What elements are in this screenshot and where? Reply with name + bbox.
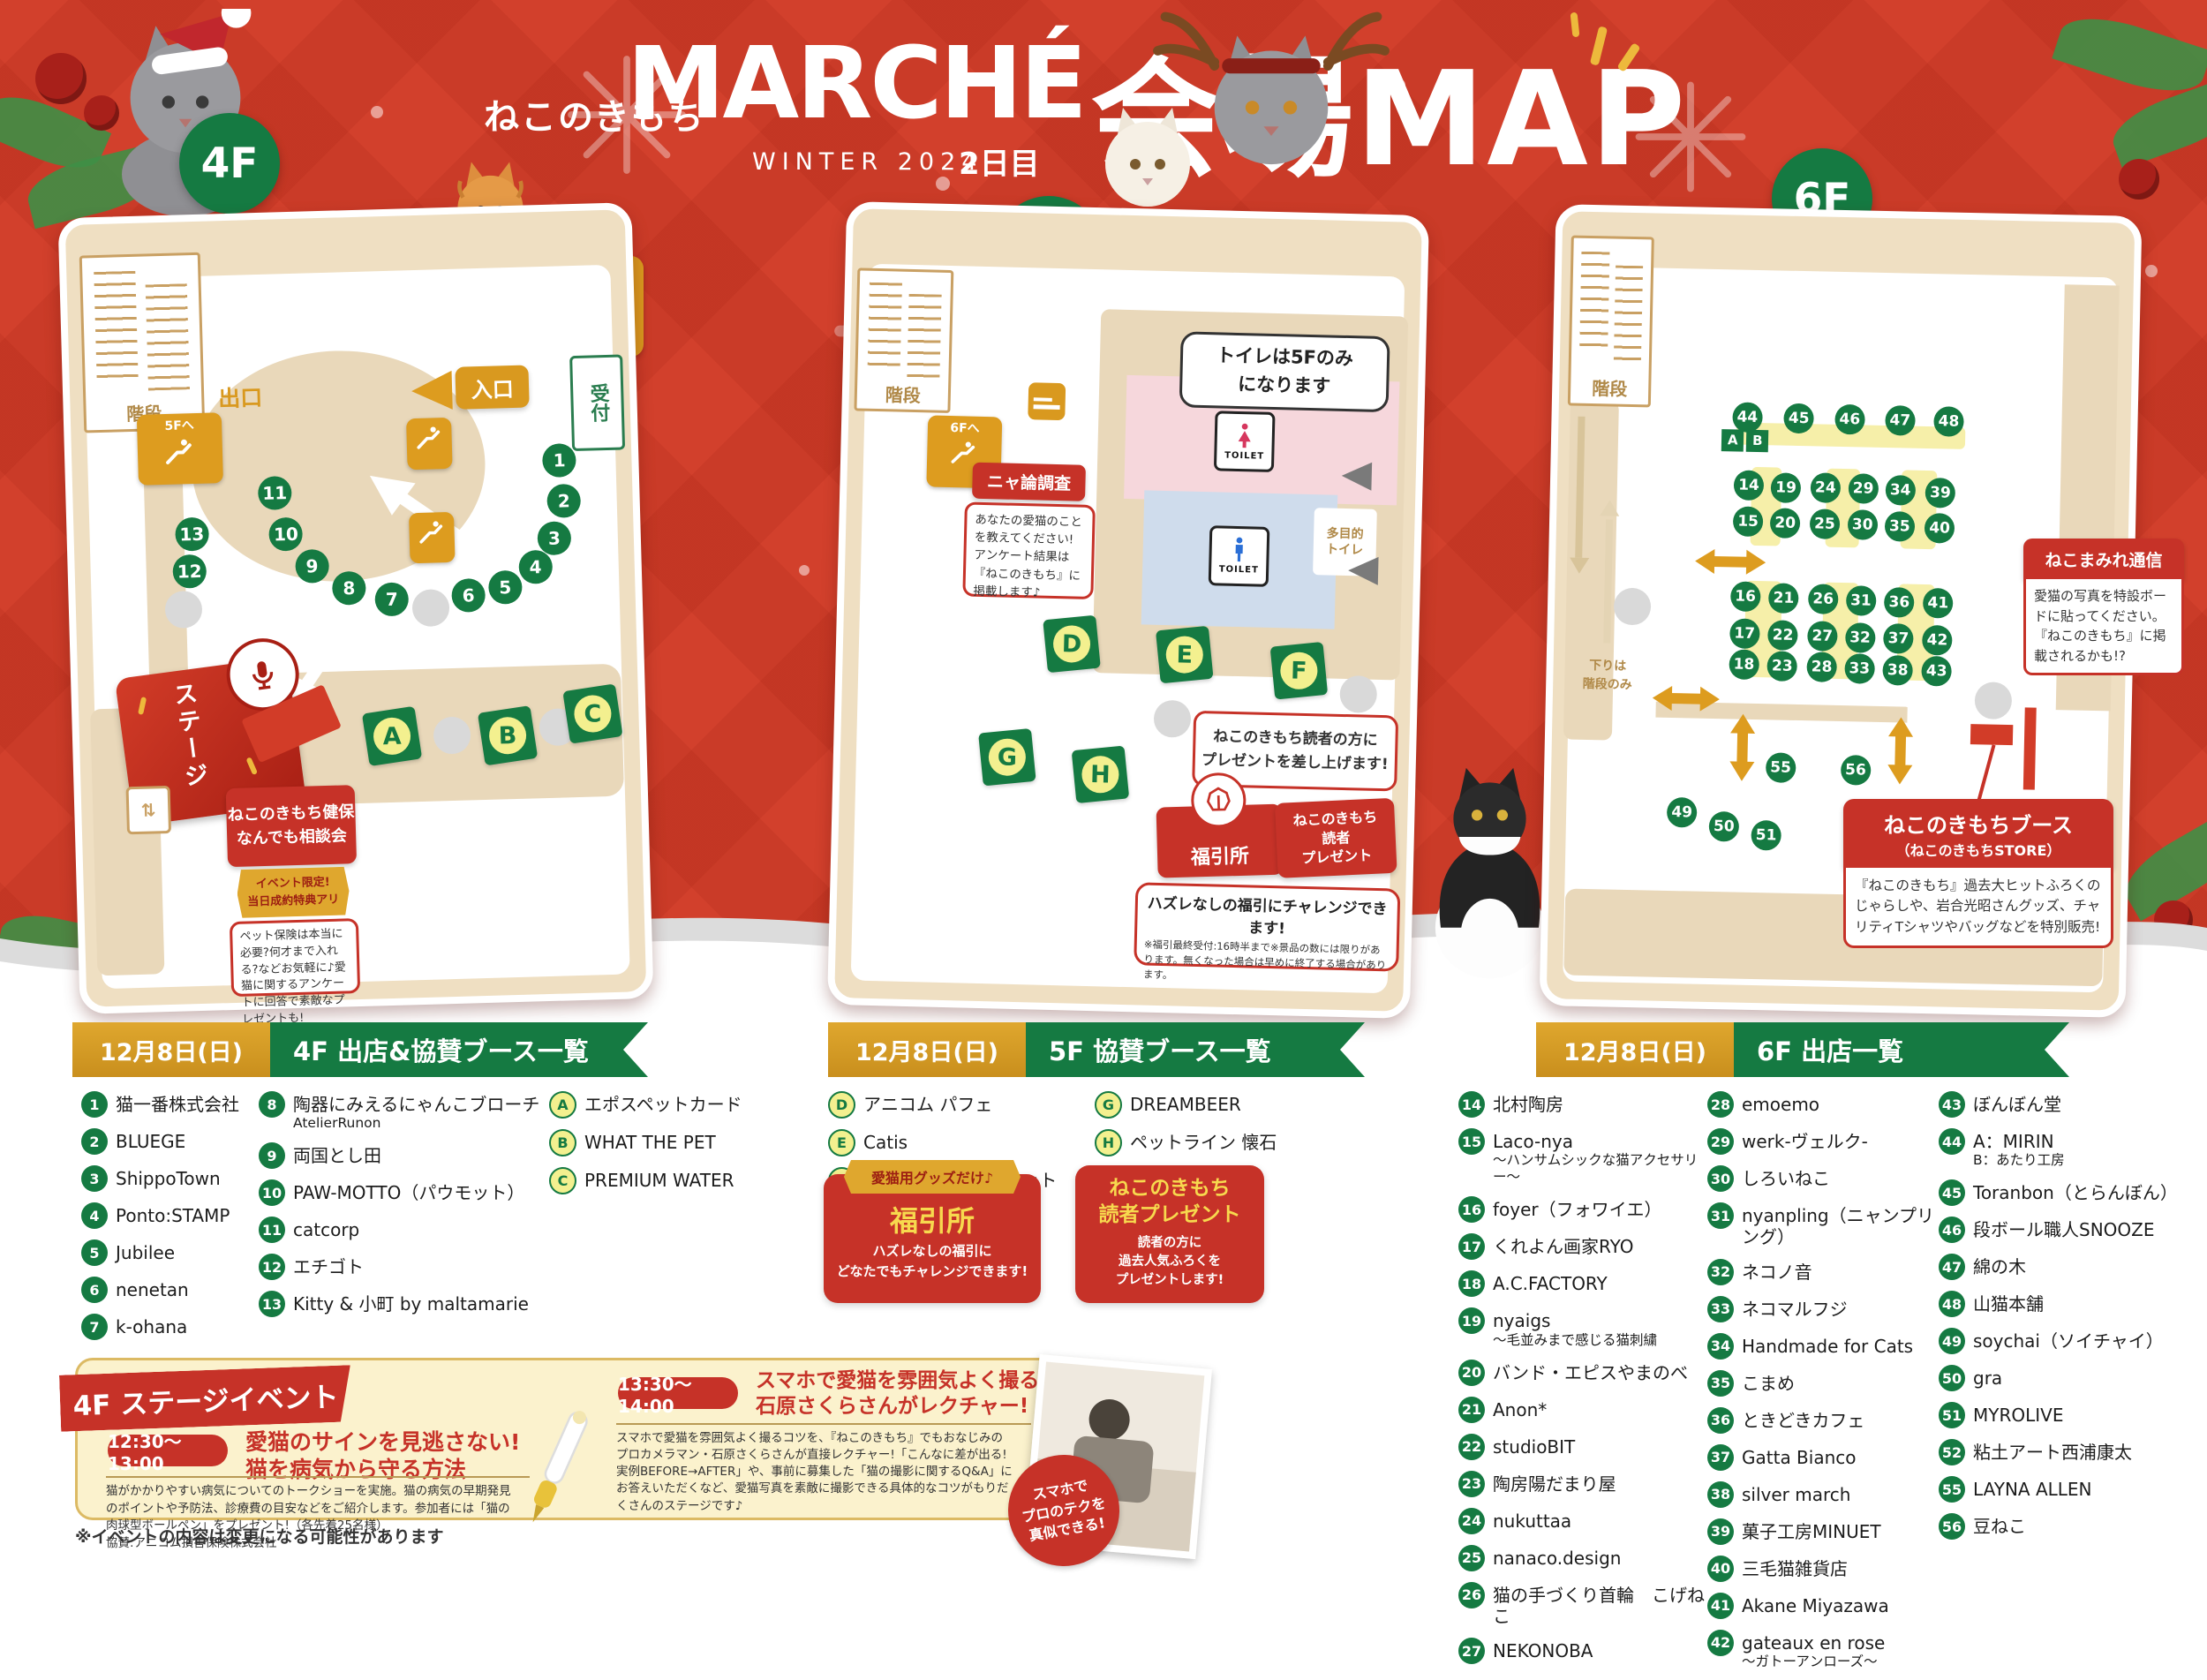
list-item: 38silver march bbox=[1707, 1480, 1950, 1508]
ornament-ball bbox=[2119, 159, 2159, 200]
list-item: 31nyanpling（ニャンプリング） bbox=[1707, 1202, 1950, 1248]
map-4f: 階段 5Fへ 出口 入口 受付 12345678910111213 ABC ステ… bbox=[58, 202, 654, 1014]
f5-list-title: 5F 協賛ブース一覧 bbox=[1026, 1022, 1365, 1077]
list-item: 50gra bbox=[1939, 1364, 2203, 1391]
sparkle-icon bbox=[245, 757, 258, 775]
list-item: 18A.C.FACTORY bbox=[1458, 1269, 1710, 1297]
booth-marker: 19 bbox=[1771, 472, 1802, 503]
list-item: Hペットライン 懐石 bbox=[1095, 1128, 1333, 1156]
list-item: 3ShippoTown bbox=[81, 1164, 258, 1192]
list-item: 39菓子工房MINUET bbox=[1707, 1518, 1950, 1545]
event-title: MARCHÉ bbox=[627, 26, 1085, 141]
booth-marker: 55 bbox=[1766, 753, 1796, 784]
fukubiki-note-body: ※福引最終受付:16時半まで※景品の数には限りがあります。無くなった場合は早めに… bbox=[1143, 938, 1390, 988]
fukubiki-promo-box: 愛猫用グッズだけ♪ 福引所 ハズレなしの福引に どなたでもチャレンジできます! bbox=[824, 1174, 1041, 1303]
consult-callout-badge: イベント限定! 当日成約特典アリ bbox=[237, 867, 350, 918]
booth-marker: 18 bbox=[1729, 650, 1759, 681]
divider bbox=[616, 1423, 1031, 1425]
list-item: 40三毛猫雑貨店 bbox=[1707, 1555, 1950, 1582]
store-callout-body: 『ねこのきもち』過去大ヒットふろくのじゃらしや、岩合光昭さんグッズ、チャリティT… bbox=[1843, 868, 2113, 948]
nekonokimochi-store-booth bbox=[1970, 724, 2013, 745]
booth-marker: 38 bbox=[1882, 655, 1913, 686]
bokeh-dot bbox=[371, 106, 383, 118]
booth-marker: 46 bbox=[1834, 404, 1865, 435]
f5-list-date: 12月8日(日) bbox=[828, 1022, 1026, 1077]
list-item: 35こまめ bbox=[1707, 1369, 1950, 1397]
divider bbox=[106, 1476, 530, 1478]
booth-marker: 48 bbox=[1933, 406, 1964, 437]
consult-callout-title: ねこのきもち健保 なんでも相談会 bbox=[226, 785, 357, 867]
booth-marker: 15 bbox=[1733, 506, 1764, 537]
f6-list-col3: 43ぼんぼん堂44A：MIRINB：あたり工房45Toranbon（とらんぼん）… bbox=[1939, 1090, 2203, 1549]
list-item: Aエポスペットカード bbox=[549, 1090, 814, 1119]
f4-list-date: 12月8日(日) bbox=[72, 1022, 270, 1077]
list-item: CPREMIUM WATER bbox=[549, 1166, 814, 1194]
event1-time: 12:30～13:00 bbox=[108, 1435, 228, 1466]
list-item: 47綿の木 bbox=[1939, 1253, 2203, 1280]
list-item: 37Gatta Bianco bbox=[1707, 1443, 1950, 1471]
f5-list-col2: GDREAMBEERHペットライン 懐石 bbox=[1095, 1090, 1333, 1166]
event-season: WINTER 2024 bbox=[752, 148, 983, 176]
store-callout: ねこのきもちブース （ねこのきもちSTORE） 『ねこのきもち』過去大ヒットふろ… bbox=[1843, 799, 2113, 948]
f4-list-col3: AエポスペットカードBWHAT THE PETCPREMIUM WATER bbox=[549, 1090, 814, 1204]
nekomamire-callout: ねこまみれ通信 愛猫の写真を特設ボードに貼ってください。『ねこのきもち』に掲載さ… bbox=[2023, 539, 2184, 675]
booth-marker: 16 bbox=[1730, 581, 1761, 612]
bokeh-dot bbox=[936, 177, 950, 191]
stage-event-note: ※イベントの内容は変更になる可能性があります bbox=[75, 1524, 443, 1548]
booth-marker: 24 bbox=[1810, 472, 1841, 503]
list-item: 46段ボール職人SNOOZE bbox=[1939, 1216, 2203, 1243]
nekomamire-body: 愛猫の写真を特設ボードに貼ってください。『ねこのきもち』に掲載されるかも!? bbox=[2023, 579, 2184, 675]
sponsor-booth-marker: A bbox=[362, 706, 422, 766]
booth-marker: 31 bbox=[1846, 586, 1877, 617]
list-item: 49soychai（ソイチャイ） bbox=[1939, 1327, 2203, 1354]
f6-list-col1: 14北村陶房15Laco-nya～ハンサムシックな猫アクセサリー～16foyer… bbox=[1458, 1090, 1710, 1674]
list-item: 20バンド・エピスやまのべ bbox=[1458, 1359, 1710, 1386]
list-item: 13Kitty & 小町 by maltamarie bbox=[259, 1290, 559, 1317]
booth-marker: 49 bbox=[1667, 797, 1698, 828]
booth-marker: 27 bbox=[1807, 622, 1838, 652]
list-item: 9両国とし田 bbox=[259, 1141, 559, 1169]
list-item: 24nukuttaa bbox=[1458, 1507, 1710, 1534]
booth-marker: 20 bbox=[1770, 508, 1801, 539]
sponsor-booth-marker: F bbox=[1270, 642, 1329, 700]
list-item: 1猫一番株式会社 bbox=[81, 1090, 258, 1118]
list-item: 27NEKONOBA bbox=[1458, 1637, 1710, 1664]
booth-marker: 25 bbox=[1810, 509, 1841, 539]
list-item: 16foyer（フォワイエ） bbox=[1458, 1195, 1710, 1223]
booth-marker: 39 bbox=[1925, 478, 1956, 509]
booth-marker: 33 bbox=[1844, 653, 1875, 684]
list-item: 33ネコマルフジ bbox=[1707, 1295, 1950, 1322]
booth-marker: 29 bbox=[1848, 473, 1879, 504]
list-item: 4Ponto:STAMP bbox=[81, 1202, 258, 1229]
booth-marker: 43 bbox=[1921, 656, 1952, 687]
booth-marker: 32 bbox=[1845, 622, 1876, 653]
event-day: 2日目 bbox=[959, 139, 1040, 183]
list-item: 29werk-ヴェルク- bbox=[1707, 1127, 1950, 1155]
fukubiki-ribbon: 愛猫用グッズだけ♪ bbox=[844, 1160, 1021, 1194]
list-item: 45Toranbon（とらんぼん） bbox=[1939, 1179, 2203, 1206]
fukubiki-title: 福引所 bbox=[824, 1199, 1041, 1239]
booth-marker: 14 bbox=[1734, 470, 1765, 501]
list-item: 25nanaco.design bbox=[1458, 1544, 1710, 1571]
booth-marker: 42 bbox=[1922, 625, 1953, 656]
list-item: 14北村陶房 bbox=[1458, 1090, 1710, 1118]
booth-marker: 23 bbox=[1767, 651, 1798, 682]
stage-label: ステージ bbox=[164, 680, 213, 793]
list-item: Dアニコム パフェ bbox=[828, 1090, 1075, 1119]
list-item: 43ぼんぼん堂 bbox=[1939, 1090, 2203, 1118]
booth-marker: 34 bbox=[1885, 475, 1916, 506]
list-item: 26猫の手づくり首輪 こげねこ bbox=[1458, 1581, 1710, 1628]
present-title: ねこのきもち 読者プレゼント bbox=[1075, 1176, 1264, 1229]
reader-present-promo-box: ねこのきもち 読者プレゼント 読者の方に 過去人気ふろくを プレゼントします! bbox=[1075, 1165, 1264, 1303]
booth-marker: 28 bbox=[1806, 652, 1837, 682]
fukubiki-note-title: ハズレなしの福引にチャレンジできます! bbox=[1144, 891, 1390, 941]
fukubiki-note: ハズレなしの福引にチャレンジできます! ※福引最終受付:16時半まで※景品の数に… bbox=[1134, 883, 1400, 972]
sponsor-booth-marker: H bbox=[1072, 745, 1130, 803]
floor-4f-label: 4F bbox=[179, 113, 280, 214]
f4-list-title: 4F 出店&協賛ブース一覧 bbox=[270, 1022, 648, 1077]
store-callout-title: ねこのきもちブース （ねこのきもちSTORE） bbox=[1843, 799, 2113, 868]
present-body: 読者の方に 過去人気ふろくを プレゼントします! bbox=[1075, 1234, 1264, 1290]
list-item: 56豆ねこ bbox=[1939, 1512, 2203, 1540]
list-item: GDREAMBEER bbox=[1095, 1090, 1333, 1119]
list-item: 2BLUEGE bbox=[81, 1127, 258, 1155]
list-item: 34Handmade for Cats bbox=[1707, 1332, 1950, 1360]
nekomamire-title: ねこまみれ通信 bbox=[2023, 539, 2184, 579]
list-item: 48山猫本舗 bbox=[1939, 1290, 2203, 1317]
booth-marker: 51 bbox=[1751, 820, 1781, 851]
list-item: ECatis bbox=[828, 1128, 1075, 1156]
booth-marker: 40 bbox=[1925, 513, 1955, 544]
cat-photo-reindeer-gray bbox=[1139, 4, 1404, 203]
event2-time: 13:30～14:00 bbox=[618, 1377, 738, 1409]
booth-marker: 44 bbox=[1732, 403, 1763, 433]
booth-marker: 47 bbox=[1885, 405, 1916, 436]
booth-marker: 35 bbox=[1884, 511, 1915, 542]
list-item: 19nyaigs～毛並みまで感じる猫刺繍 bbox=[1458, 1307, 1710, 1348]
store-callout-subtitle: （ねこのきもちSTORE） bbox=[1896, 839, 2061, 860]
f4-list-col1: 1猫一番株式会社2BLUEGE3ShippoTown4Ponto:STAMP5J… bbox=[81, 1090, 258, 1350]
reader-present-booth: ねこのきもち 読者 プレゼント bbox=[1275, 798, 1397, 878]
list-item: 52粘土アート西浦康太 bbox=[1939, 1438, 2203, 1465]
sponsor-booths-4f: ABC bbox=[65, 209, 646, 1006]
booth-marker: 41 bbox=[1923, 588, 1954, 619]
list-item: 51MYROLIVE bbox=[1939, 1401, 2203, 1428]
f4-list-col2: 8陶器にみえるにゃんこブローチAtelierRunon9両国とし田10PAW-M… bbox=[259, 1090, 559, 1327]
fukubiki-spot: 福引所 bbox=[1156, 804, 1283, 878]
lottery-icon bbox=[1190, 772, 1247, 829]
booth-marker: 22 bbox=[1767, 621, 1798, 652]
list-item: 15Laco-nya～ハンサムシックな猫アクセサリー～ bbox=[1458, 1127, 1710, 1186]
list-item: 11catcorp bbox=[259, 1216, 559, 1243]
booth-marker: 21 bbox=[1768, 583, 1799, 614]
list-item: 36ときどきカフェ bbox=[1707, 1406, 1950, 1434]
booth-marker: 26 bbox=[1808, 584, 1839, 614]
booth-marker: 56 bbox=[1841, 755, 1872, 786]
bokeh-dot bbox=[799, 565, 810, 576]
booth-marker: 50 bbox=[1708, 811, 1739, 842]
sponsor-booth-marker: D bbox=[1043, 615, 1101, 674]
bokeh-dot bbox=[2145, 265, 2158, 277]
booth-marker: 30 bbox=[1847, 509, 1878, 540]
f6-list-date: 12月8日(日) bbox=[1536, 1022, 1734, 1077]
list-item: 32ネコノ音 bbox=[1707, 1258, 1950, 1285]
list-item: 6nenetan bbox=[81, 1276, 258, 1303]
list-item: 7k-ohana bbox=[81, 1313, 258, 1340]
list-item: 42gateaux en rose～ガトーアンローズ～ bbox=[1707, 1629, 1950, 1670]
red-wall-bar bbox=[2023, 708, 2037, 790]
event2-body: スマホで愛猫を雰囲気よく撮るコツを、『ねこのきもち』でもおなじみのプロカメラマン… bbox=[616, 1430, 1013, 1515]
stage-event-ribbon: 4F ステージイベント bbox=[59, 1365, 352, 1431]
list-item: 17くれよん画家RYO bbox=[1458, 1232, 1710, 1260]
list-item: 30しろいねこ bbox=[1707, 1164, 1950, 1192]
list-item: 41Akane Miyazawa bbox=[1707, 1592, 1950, 1619]
sparkle-icon bbox=[138, 697, 147, 715]
sponsor-booth-marker: C bbox=[562, 683, 622, 743]
sponsor-booth-marker: B bbox=[478, 705, 538, 765]
booth-marker: 36 bbox=[1884, 587, 1915, 618]
list-item: 21Anon* bbox=[1458, 1396, 1710, 1423]
list-item: 44A：MIRINB：あたり工房 bbox=[1939, 1127, 2203, 1169]
list-item: 22studioBIT bbox=[1458, 1433, 1710, 1460]
list-item: 12エチゴト bbox=[259, 1253, 559, 1280]
booth-marker: 37 bbox=[1883, 623, 1914, 654]
list-item: 28emoemo bbox=[1707, 1090, 1950, 1118]
list-item: 5Jubilee bbox=[81, 1239, 258, 1266]
list-item: 8陶器にみえるにゃんこブローチAtelierRunon bbox=[259, 1090, 559, 1132]
sponsor-booth-marker: G bbox=[978, 728, 1036, 787]
list-item: 55LAYNA ALLEN bbox=[1939, 1475, 2203, 1503]
booth-marker: 45 bbox=[1783, 403, 1814, 434]
elevator-icon: ⇅ bbox=[125, 786, 170, 834]
booth-marker: 17 bbox=[1729, 618, 1760, 649]
map-5f: 多目的 トイレ 階段 6Fへ トイレは5Fのみ になります TOILET TOI… bbox=[827, 201, 1429, 1019]
f6-list-col2: 28emoemo29werk-ヴェルク-30しろいねこ31nyanpling（ニ… bbox=[1707, 1090, 1950, 1680]
fukubiki-body: ハズレなしの福引に どなたでもチャレンジできます! bbox=[824, 1241, 1041, 1281]
consult-callout-body: ペット保険は本当に必要?何才まで入れる?などお気軽に♪愛猫に関するアンケートに回… bbox=[230, 918, 360, 997]
f6-list-title: 6F 出店一覧 bbox=[1734, 1022, 2069, 1077]
list-item: 10PAW-MOTTO（パウモット） bbox=[259, 1179, 559, 1206]
sponsor-booth-marker: E bbox=[1156, 626, 1214, 684]
list-item: 23陶房陽だまり屋 bbox=[1458, 1470, 1710, 1497]
list-item: BWHAT THE PET bbox=[549, 1128, 814, 1156]
